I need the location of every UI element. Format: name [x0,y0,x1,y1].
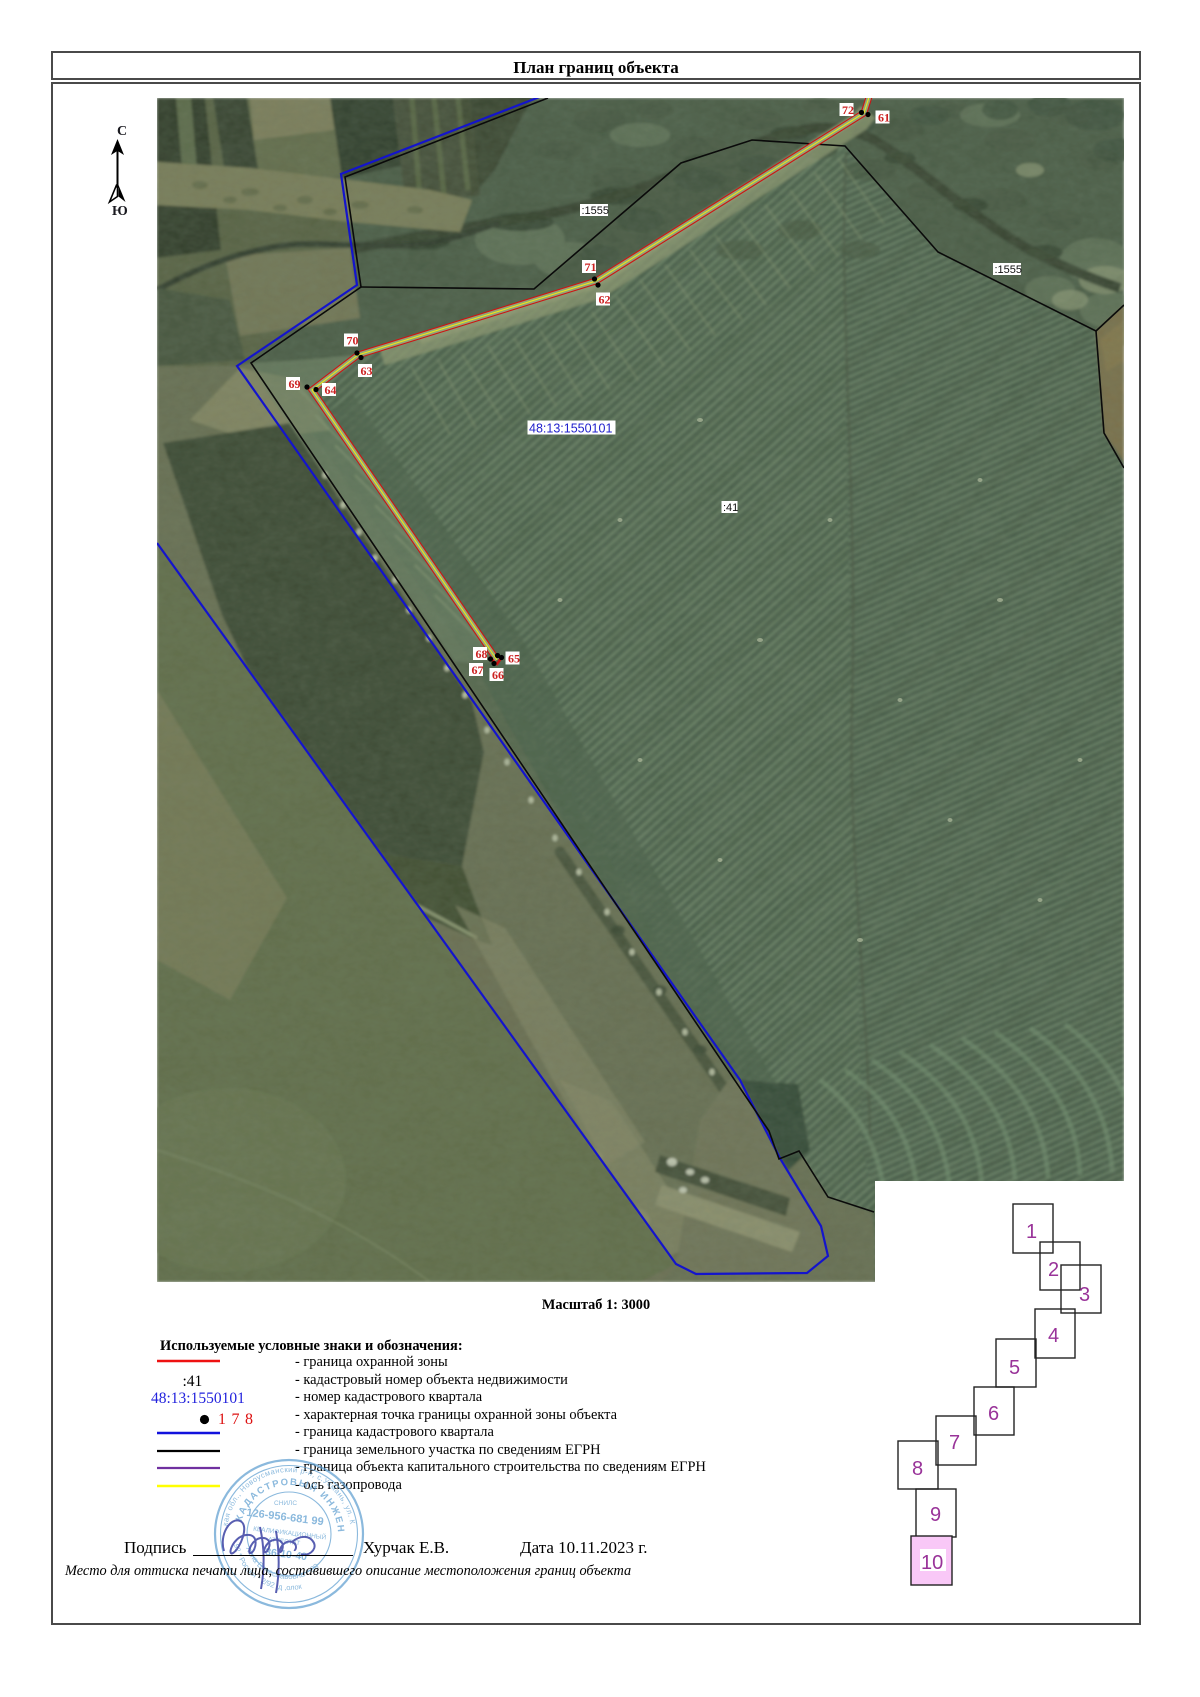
svg-text:7: 7 [949,1432,960,1454]
svg-text:С: С [117,124,127,139]
svg-text::41: :41 [723,502,738,514]
svg-text:69: 69 [289,377,301,391]
svg-text:1: 1 [1026,1221,1037,1243]
svg-text:62: 62 [599,293,611,307]
svg-text:64: 64 [325,383,337,397]
svg-text::41: :41 [183,1373,203,1390]
svg-text:72: 72 [842,103,854,117]
svg-text:2: 2 [1048,1259,1059,1281]
svg-text:48:13:1550101: 48:13:1550101 [151,1390,245,1407]
svg-text:10: 10 [921,1552,943,1574]
svg-text:65: 65 [508,652,520,666]
svg-text:71: 71 [585,260,597,274]
svg-text:48:13:1550101: 48:13:1550101 [529,422,612,436]
svg-text:66: 66 [492,668,504,682]
svg-text:5: 5 [1009,1357,1020,1379]
svg-text:9: 9 [930,1504,941,1526]
svg-text::1555: :1555 [995,264,1023,276]
svg-text:68: 68 [476,647,488,661]
svg-text:6: 6 [988,1403,999,1425]
svg-text:178: 178 [218,1411,259,1428]
svg-text:67: 67 [472,663,484,677]
svg-text:3: 3 [1079,1284,1090,1306]
svg-text:8: 8 [912,1458,923,1480]
svg-text::1555: :1555 [582,205,610,217]
svg-text:4: 4 [1048,1325,1059,1347]
svg-text:61: 61 [878,111,890,125]
svg-text:70: 70 [347,334,359,348]
svg-text:Ю: Ю [112,204,128,219]
svg-text:63: 63 [361,364,373,378]
